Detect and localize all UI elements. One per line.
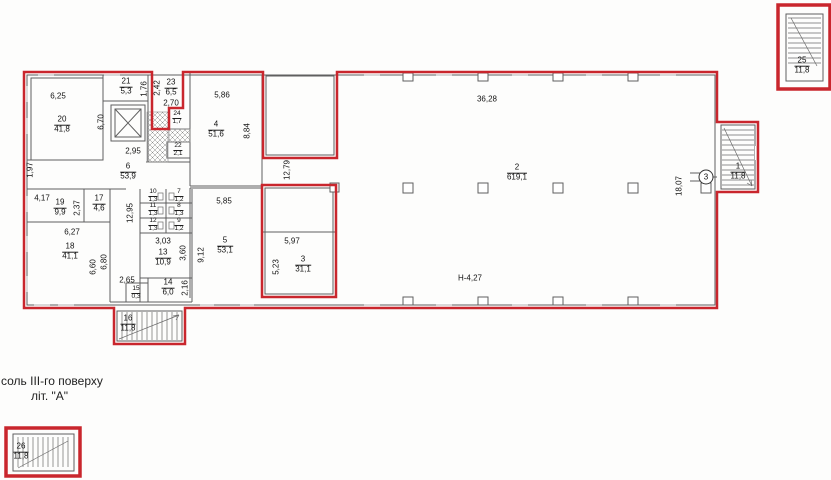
room-label-7: 71,2 bbox=[174, 189, 183, 203]
room-label-2: 2619,1 bbox=[507, 164, 527, 183]
room-label-14: 146,0 bbox=[162, 279, 175, 298]
dim-label-5,86: 5,86 bbox=[214, 91, 230, 100]
plan-caption: соль ІІІ-го поверху літ. "А" bbox=[1, 374, 103, 404]
dim-label-5,85: 5,85 bbox=[216, 197, 232, 206]
dim-label-6,80: 6,80 bbox=[100, 254, 109, 270]
dim-label-6,27: 6,27 bbox=[64, 228, 80, 237]
dim-label-2,42: 2,42 bbox=[153, 80, 162, 96]
dim-label-2,37: 2,37 bbox=[73, 200, 82, 216]
room-label-19: 199,9 bbox=[54, 199, 67, 218]
dim-label-18,07: 18,07 bbox=[675, 176, 684, 196]
room-label-26: 2611,8 bbox=[14, 443, 29, 462]
dim-label-2,65: 2,65 bbox=[119, 276, 135, 285]
room-label-17: 174,6 bbox=[93, 195, 106, 214]
dim-label-6,25: 6,25 bbox=[50, 92, 66, 101]
room-label-25: 2511,8 bbox=[795, 57, 810, 76]
dim-label-6,70: 6,70 bbox=[97, 114, 106, 130]
dim-label-2,16: 2,16 bbox=[181, 280, 190, 296]
room-label-1: 111,8 bbox=[731, 163, 746, 182]
dim-label-1,76: 1,76 bbox=[140, 81, 149, 97]
dim-label-9,12: 9,12 bbox=[197, 247, 206, 263]
dim-label-2,95: 2,95 bbox=[125, 147, 141, 156]
room-label-21: 215,3 bbox=[120, 78, 133, 97]
room-label-6: 653,9 bbox=[120, 163, 136, 182]
dim-label-6,60: 6,60 bbox=[89, 259, 98, 275]
room-label-22: 222,1 bbox=[173, 143, 182, 157]
room-label-3: 331,1 bbox=[295, 256, 311, 275]
room-label-23: 236,5 bbox=[165, 79, 178, 98]
dim-label-2,70: 2,70 bbox=[163, 99, 179, 108]
room-label-11: 111,3 bbox=[148, 203, 157, 217]
room-label-16: 1611,8 bbox=[121, 315, 136, 334]
room-label-8: 81,3 bbox=[174, 203, 183, 217]
dim-label-12,95: 12,95 bbox=[126, 203, 135, 223]
room-label-5: 553,1 bbox=[217, 237, 233, 256]
dim-label-1,97: 1,97 bbox=[26, 162, 35, 178]
room-label-24: 241,7 bbox=[172, 111, 181, 125]
dim-label-5,23: 5,23 bbox=[272, 259, 281, 275]
dim-label-12,79: 12,79 bbox=[283, 160, 292, 180]
room-label-4: 451,6 bbox=[208, 121, 224, 140]
room-label-20: 2041,8 bbox=[54, 116, 70, 135]
dim-label-8,84: 8,84 bbox=[243, 123, 252, 139]
axis-marker-3: 3 bbox=[699, 170, 714, 185]
room-label-15: 150,3 bbox=[131, 286, 140, 300]
room-label-18: 1841,1 bbox=[62, 243, 78, 262]
dim-label-3,60: 3,60 bbox=[179, 245, 188, 261]
labels-layer: 111,82619,1331,1451,6553,1653,971,281,39… bbox=[0, 0, 831, 480]
floor-plan: 111,82619,1331,1451,6553,1653,971,281,39… bbox=[0, 0, 831, 480]
room-label-9: 91,2 bbox=[174, 218, 183, 232]
caption-line1: соль ІІІ-го поверху bbox=[1, 374, 103, 389]
dim-label-36,28: 36,28 bbox=[477, 95, 497, 104]
dim-label-4,17: 4,17 bbox=[34, 194, 50, 203]
dim-label-Н-4,27: Н-4,27 bbox=[458, 274, 482, 283]
dim-label-3,03: 3,03 bbox=[155, 237, 171, 246]
caption-line2: літ. "А" bbox=[31, 389, 103, 404]
room-label-13: 1310,9 bbox=[155, 249, 171, 268]
room-label-10: 101,3 bbox=[148, 189, 157, 203]
dim-label-5,97: 5,97 bbox=[284, 237, 300, 246]
room-label-12: 121,3 bbox=[148, 218, 157, 232]
